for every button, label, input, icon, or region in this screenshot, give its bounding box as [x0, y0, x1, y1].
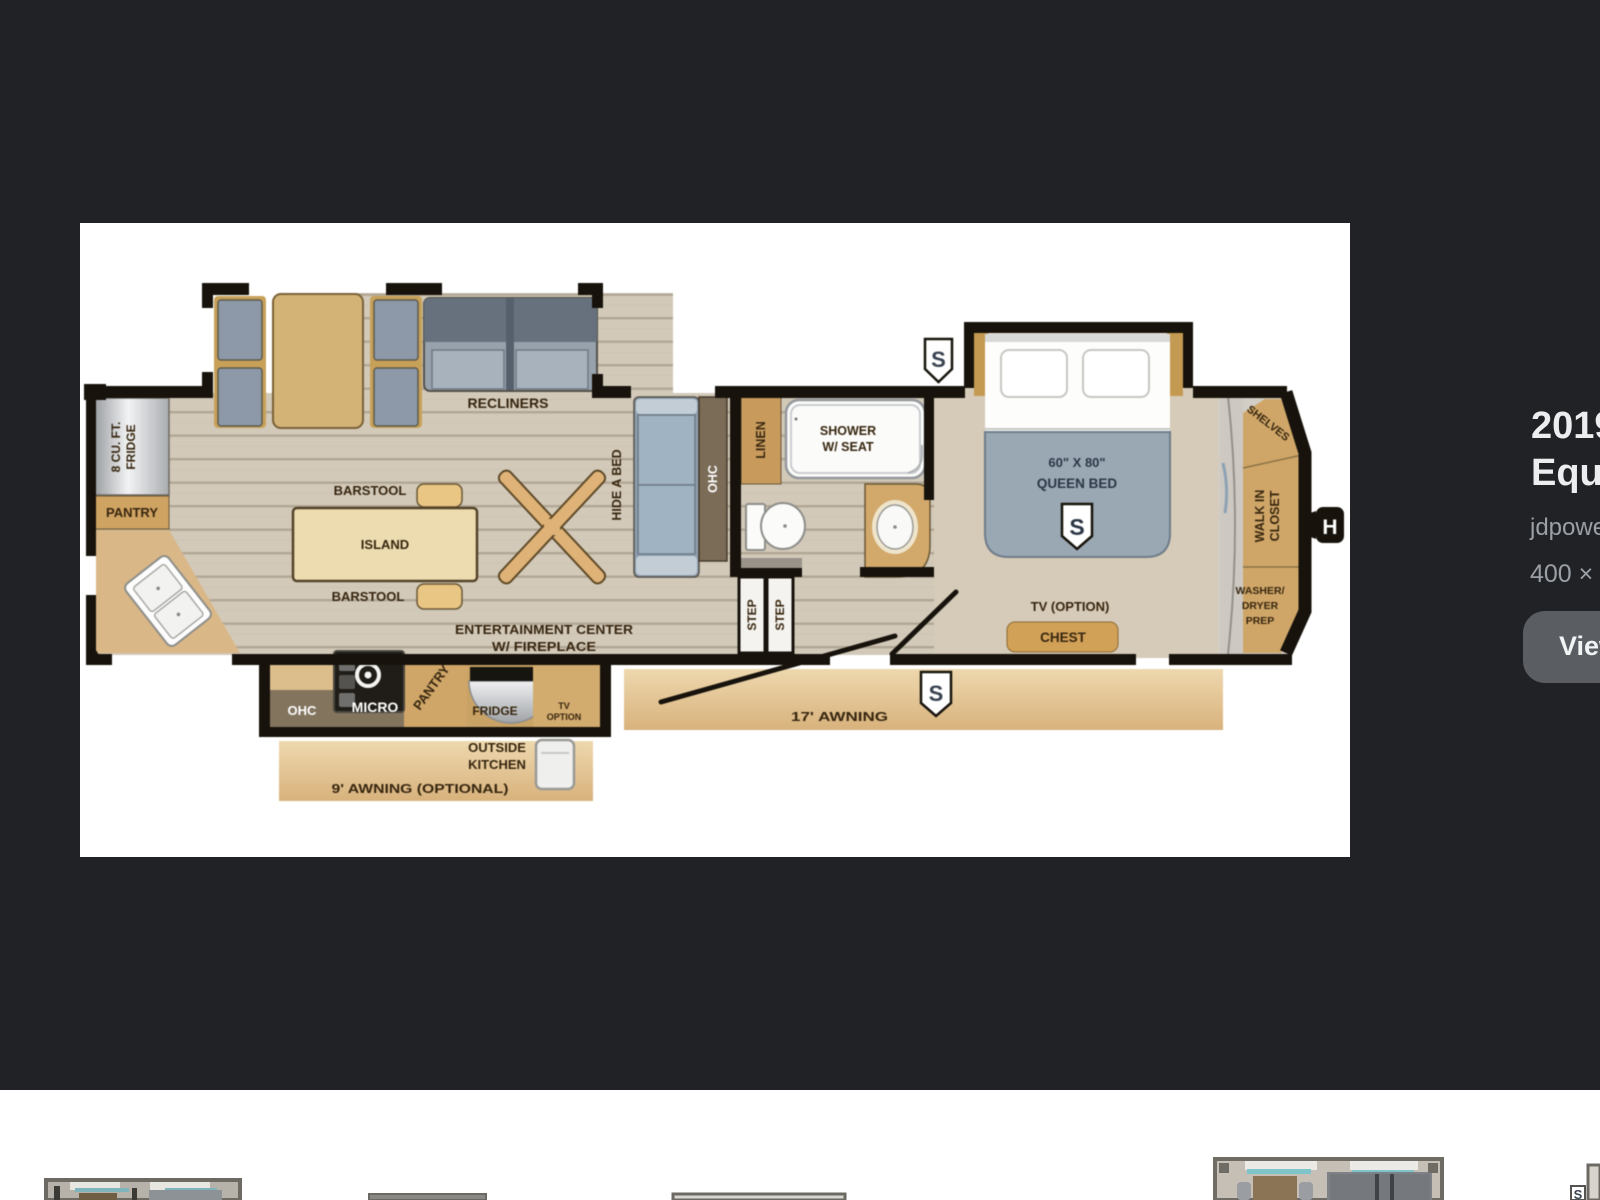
svg-text:60" X 80": 60" X 80" — [1048, 455, 1105, 470]
svg-text:ISLAND: ISLAND — [361, 537, 409, 552]
svg-text:STEP: STEP — [745, 599, 759, 630]
svg-text:FRIDGE: FRIDGE — [472, 704, 517, 718]
svg-text:S: S — [931, 347, 946, 372]
svg-text:HIDE A BED: HIDE A BED — [610, 449, 624, 520]
svg-text:WALK IN: WALK IN — [1253, 490, 1267, 543]
svg-text:OHC: OHC — [288, 703, 318, 718]
svg-text:DRYER: DRYER — [1242, 600, 1279, 612]
svg-text:TV: TV — [558, 701, 570, 711]
svg-text:BARSTOOL: BARSTOOL — [332, 589, 405, 604]
svg-text:KITCHEN: KITCHEN — [468, 757, 526, 772]
svg-text:S: S — [1069, 514, 1084, 540]
svg-text:OPTION: OPTION — [547, 712, 582, 722]
svg-text:RECLINERS: RECLINERS — [468, 395, 549, 411]
svg-text:CHEST: CHEST — [1040, 630, 1087, 645]
svg-text:PANTRY: PANTRY — [106, 505, 158, 520]
svg-text:W/ FIREPLACE: W/ FIREPLACE — [492, 639, 596, 654]
svg-text:SHOWER: SHOWER — [820, 424, 876, 438]
svg-text:OUTSIDE: OUTSIDE — [468, 740, 526, 755]
svg-text:S: S — [929, 681, 944, 706]
svg-text:WASHER/: WASHER/ — [1235, 585, 1284, 597]
svg-text:9' AWNING (OPTIONAL): 9' AWNING (OPTIONAL) — [332, 781, 509, 796]
svg-text:STEP: STEP — [773, 599, 787, 630]
svg-text:ENTERTAINMENT CENTER: ENTERTAINMENT CENTER — [455, 622, 634, 637]
svg-text:MICRO: MICRO — [352, 699, 399, 715]
svg-text:8 CU. FT.: 8 CU. FT. — [109, 422, 123, 473]
svg-text:QUEEN BED: QUEEN BED — [1037, 476, 1118, 491]
svg-text:TV (OPTION): TV (OPTION) — [1031, 599, 1110, 614]
svg-text:W/ SEAT: W/ SEAT — [822, 440, 874, 454]
svg-text:OHC: OHC — [706, 465, 720, 493]
svg-text:LINEN: LINEN — [754, 421, 768, 459]
svg-text:S: S — [1574, 1187, 1583, 1200]
svg-text:PREP: PREP — [1246, 615, 1275, 627]
svg-text:17' AWNING: 17' AWNING — [791, 709, 888, 724]
svg-text:FRIDGE: FRIDGE — [124, 424, 138, 469]
svg-text:H: H — [1322, 516, 1337, 539]
svg-text:BARSTOOL: BARSTOOL — [334, 483, 407, 498]
svg-text:CLOSET: CLOSET — [1268, 490, 1282, 541]
